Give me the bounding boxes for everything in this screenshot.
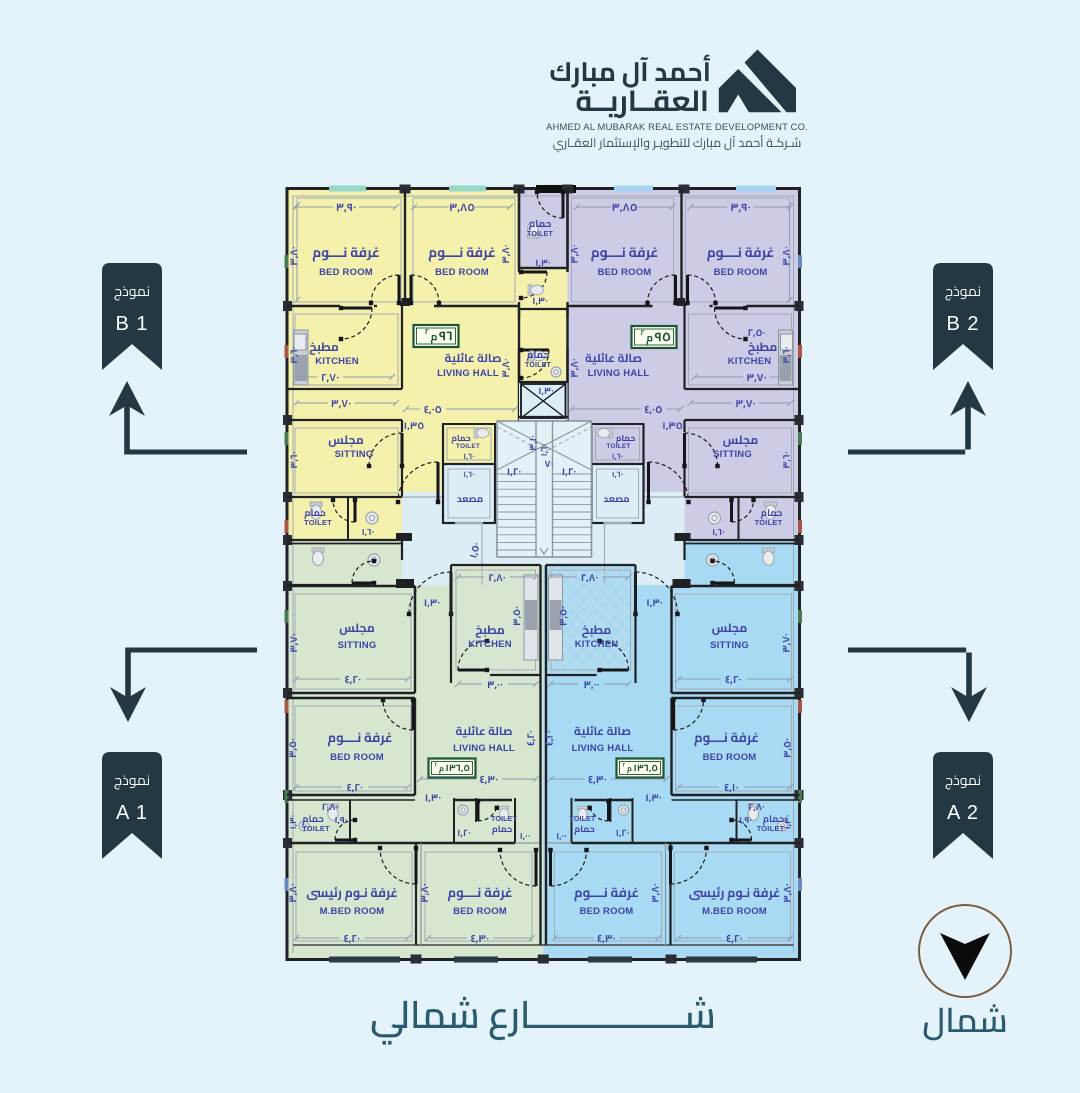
svg-text:BED ROOM: BED ROOM	[330, 752, 384, 763]
svg-text:A 1: A 1	[116, 802, 148, 824]
svg-text:TOILET: TOILET	[755, 518, 783, 527]
svg-text:TOILET: TOILET	[757, 824, 785, 833]
svg-text:BED ROOM: BED ROOM	[714, 267, 768, 278]
svg-text:B 2: B 2	[946, 313, 979, 335]
svg-text:BED ROOM: BED ROOM	[453, 906, 507, 917]
svg-text:SITTING: SITTING	[338, 640, 377, 651]
svg-text:A 2: A 2	[947, 802, 979, 824]
svg-text:KITCHEN: KITCHEN	[315, 356, 359, 367]
svg-text:TOILET: TOILET	[491, 816, 517, 823]
svg-text:LIVING HALL: LIVING HALL	[453, 743, 515, 754]
svg-text:BED ROOM: BED ROOM	[598, 267, 652, 278]
svg-text:TOILET: TOILET	[302, 824, 330, 833]
svg-text:B 1: B 1	[115, 313, 148, 335]
svg-text:TOILET: TOILET	[527, 231, 553, 238]
svg-text:TOILET: TOILET	[456, 443, 480, 450]
svg-text:KITCHEN: KITCHEN	[468, 639, 512, 650]
svg-text:TOILET: TOILET	[570, 816, 596, 823]
svg-text:LIVING HALL: LIVING HALL	[588, 368, 650, 379]
svg-text:KITCHEN: KITCHEN	[575, 639, 619, 650]
svg-text:BED ROOM: BED ROOM	[703, 752, 757, 763]
svg-text:SITTING: SITTING	[710, 640, 749, 651]
svg-text:LIVING HALL: LIVING HALL	[572, 743, 634, 754]
svg-text:TOILET: TOILET	[606, 443, 630, 450]
svg-text:BED ROOM: BED ROOM	[435, 267, 489, 278]
svg-text:BED ROOM: BED ROOM	[580, 906, 634, 917]
svg-text:TOILET: TOILET	[525, 362, 551, 369]
svg-text:TOILET: TOILET	[304, 518, 332, 527]
svg-text:SITTING: SITTING	[713, 449, 752, 460]
svg-text:LIVING HALL: LIVING HALL	[437, 368, 499, 379]
svg-text:M.BED ROOM: M.BED ROOM	[320, 906, 385, 917]
svg-text:M.BED ROOM: M.BED ROOM	[702, 906, 767, 917]
svg-text:AHMED AL MUBARAK REAL ESTATE D: AHMED AL MUBARAK REAL ESTATE DEVELOPMENT…	[546, 121, 808, 132]
svg-text:SITTING: SITTING	[335, 449, 374, 460]
svg-text:BED ROOM: BED ROOM	[319, 267, 373, 278]
svg-text:KITCHEN: KITCHEN	[728, 356, 772, 367]
